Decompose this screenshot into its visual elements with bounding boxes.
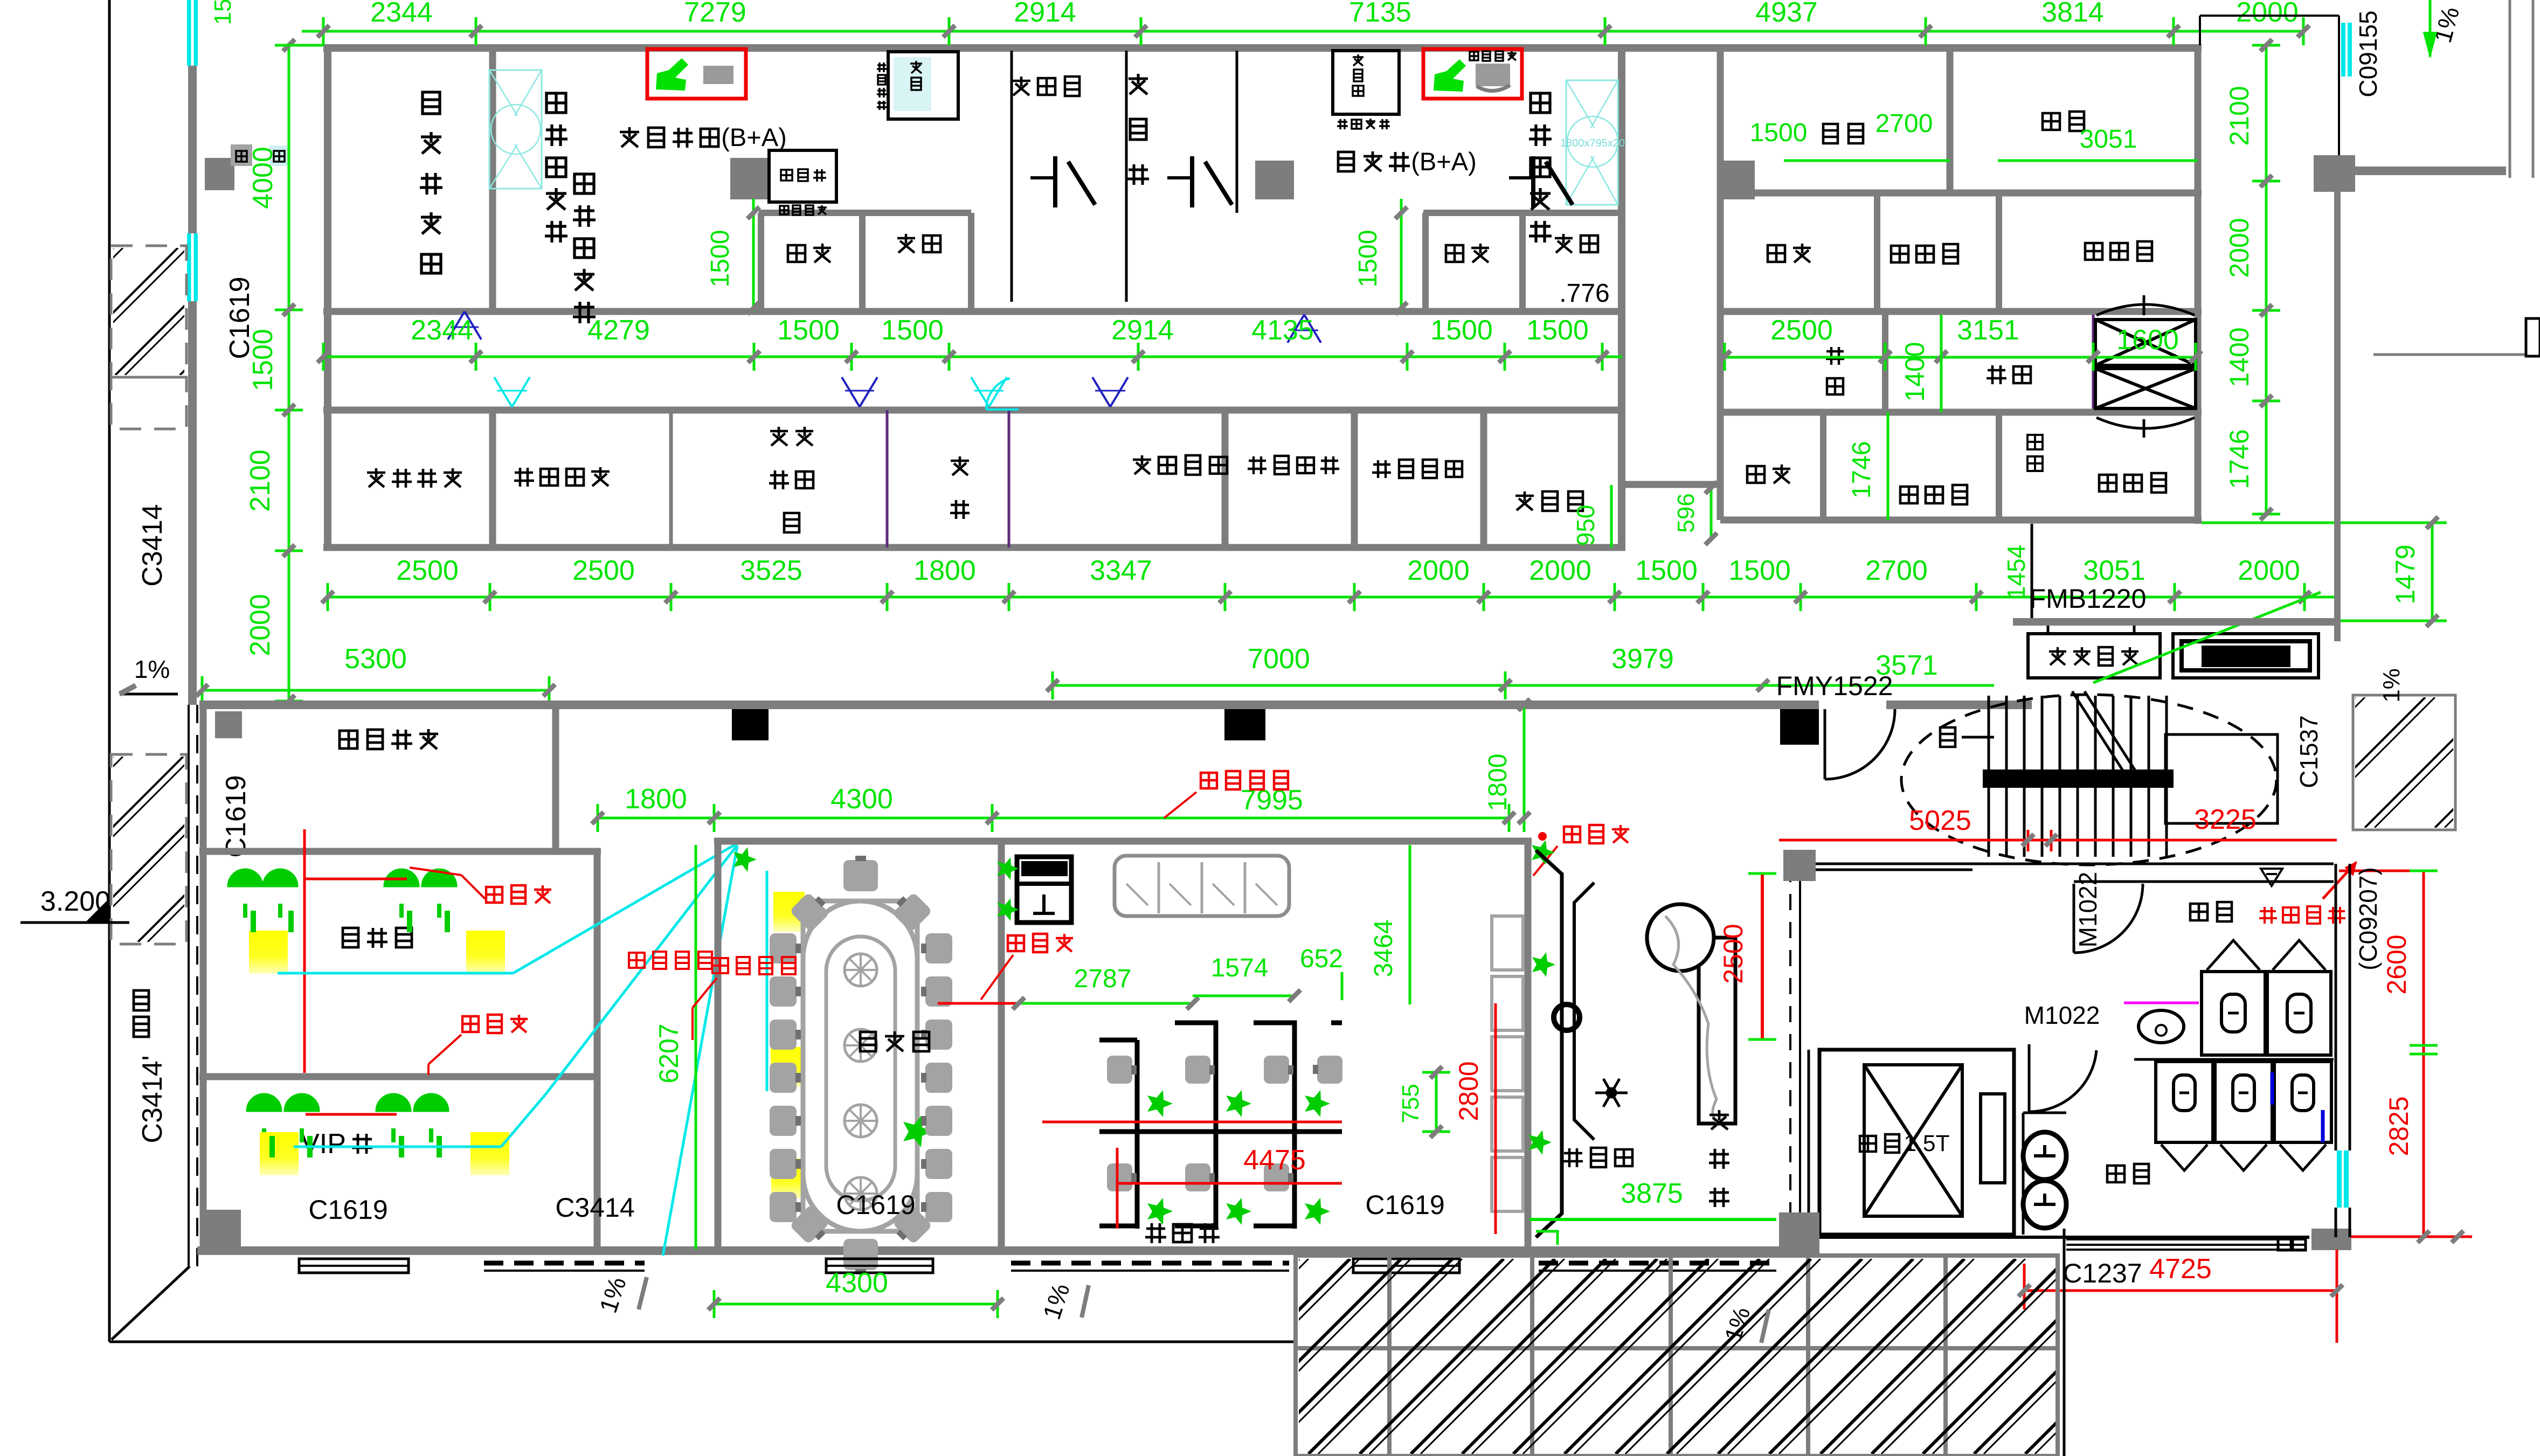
svg-text:(B+A): (B+A): [721, 123, 787, 151]
svg-text:1500: 1500: [1354, 230, 1382, 288]
svg-text:15: 15: [210, 0, 236, 25]
svg-text:3051: 3051: [2083, 555, 2145, 586]
svg-text:2700: 2700: [1875, 109, 1933, 138]
svg-text:950: 950: [1572, 505, 1600, 546]
svg-text:4725: 4725: [2149, 1253, 2212, 1285]
svg-text:C09155: C09155: [2354, 10, 2382, 97]
svg-text:3979: 3979: [1611, 643, 1674, 675]
svg-text:3814: 3814: [2041, 0, 2104, 28]
svg-text:1800: 1800: [625, 784, 687, 815]
svg-text:4937: 4937: [1755, 0, 1818, 28]
svg-text:1800x795x20: 1800x795x20: [1560, 137, 1625, 149]
svg-text:1746: 1746: [1847, 441, 1876, 499]
svg-text:1500: 1500: [1635, 555, 1698, 586]
svg-text:7279: 7279: [684, 0, 746, 28]
svg-text:C1237: C1237: [2063, 1258, 2142, 1288]
svg-text:2344: 2344: [411, 315, 473, 346]
svg-text:1500: 1500: [777, 315, 840, 346]
svg-text:2000: 2000: [2236, 0, 2299, 28]
svg-text:2500: 2500: [396, 555, 459, 586]
svg-text:4475: 4475: [1243, 1145, 1306, 1176]
svg-text:5025: 5025: [1909, 805, 1971, 836]
svg-text:2000: 2000: [2224, 218, 2254, 278]
svg-text:1746: 1746: [2224, 429, 2254, 489]
svg-text:M1022: M1022: [2024, 1001, 2100, 1029]
svg-text:C1619: C1619: [836, 1190, 915, 1220]
svg-text:1500: 1500: [1728, 555, 1791, 586]
svg-text:2000: 2000: [1529, 555, 1591, 586]
svg-text:652: 652: [1300, 945, 1343, 973]
svg-text:1500: 1500: [1750, 119, 1808, 147]
svg-text:4300: 4300: [826, 1267, 888, 1299]
svg-text:3347: 3347: [1090, 555, 1152, 586]
svg-text:3225: 3225: [2194, 804, 2257, 835]
svg-text:6207: 6207: [654, 1023, 684, 1083]
svg-text:3151: 3151: [1957, 315, 2019, 346]
svg-text:1454: 1454: [2002, 545, 2030, 600]
svg-text:2825: 2825: [2384, 1096, 2414, 1156]
svg-text:C3414: C3414: [555, 1192, 634, 1223]
svg-text:7135: 7135: [1349, 0, 1411, 28]
svg-text:4000: 4000: [247, 147, 279, 209]
svg-text:1600: 1600: [2116, 324, 2179, 356]
svg-text:1500: 1500: [881, 315, 944, 346]
svg-text:(C09207): (C09207): [2354, 867, 2382, 970]
svg-text:1%: 1%: [2378, 668, 2405, 703]
svg-text:1800: 1800: [1484, 754, 1512, 812]
svg-text:3464: 3464: [1369, 920, 1398, 977]
svg-text:1%: 1%: [134, 655, 170, 683]
svg-text:5300: 5300: [344, 643, 407, 675]
svg-text:2000: 2000: [2238, 555, 2300, 586]
svg-text:C1619: C1619: [220, 775, 252, 857]
svg-text:2000: 2000: [245, 594, 276, 656]
svg-text:2800: 2800: [1454, 1061, 1484, 1121]
svg-text:4135: 4135: [1251, 315, 1314, 346]
svg-text:FMY1522: FMY1522: [1776, 671, 1893, 701]
svg-text:1500: 1500: [706, 230, 735, 288]
svg-text:C1619: C1619: [308, 1195, 387, 1225]
svg-text:C1619: C1619: [1365, 1190, 1444, 1220]
svg-text:1.5T: 1.5T: [1904, 1131, 1949, 1156]
svg-text:3525: 3525: [740, 555, 802, 586]
svg-text:2500: 2500: [1718, 924, 1748, 983]
svg-text:755: 755: [1397, 1084, 1424, 1123]
svg-text:4279: 4279: [587, 315, 650, 346]
svg-text:3875: 3875: [1621, 1178, 1683, 1209]
svg-text:C1537: C1537: [2295, 715, 2323, 788]
svg-text:M1022: M1022: [2074, 872, 2102, 948]
svg-text:2100: 2100: [245, 449, 276, 512]
svg-text:4300: 4300: [830, 784, 893, 815]
svg-text:1479: 1479: [2390, 544, 2420, 604]
svg-text:1574: 1574: [1211, 954, 1269, 982]
svg-text:1400: 1400: [1900, 342, 1930, 401]
svg-text:C3414: C3414: [137, 504, 168, 586]
svg-text:1500: 1500: [1430, 315, 1493, 346]
svg-text:2000: 2000: [1407, 555, 1470, 586]
svg-text:2700: 2700: [1865, 555, 1928, 586]
svg-text:3051: 3051: [2080, 125, 2137, 154]
svg-text:2500: 2500: [1770, 315, 1833, 346]
svg-text:2344: 2344: [370, 0, 433, 28]
svg-text:.776: .776: [1559, 279, 1609, 308]
svg-text:2100: 2100: [2224, 86, 2254, 145]
svg-text:(B+A): (B+A): [1411, 147, 1477, 176]
svg-text:1500: 1500: [247, 329, 279, 391]
svg-text:2914: 2914: [1111, 315, 1174, 346]
svg-text:1400: 1400: [2224, 327, 2254, 387]
svg-text:1500: 1500: [1526, 315, 1589, 346]
svg-text:2500: 2500: [572, 555, 635, 586]
svg-text:7000: 7000: [1248, 643, 1310, 675]
svg-text:2787: 2787: [1074, 965, 1132, 993]
svg-text:FMB1220: FMB1220: [2030, 584, 2147, 614]
svg-text:596: 596: [1673, 493, 1699, 532]
svg-text:2914: 2914: [1014, 0, 1076, 28]
svg-text:C3414': C3414': [137, 1055, 168, 1143]
svg-text:2600: 2600: [2382, 934, 2412, 994]
svg-text:1800: 1800: [913, 555, 976, 586]
